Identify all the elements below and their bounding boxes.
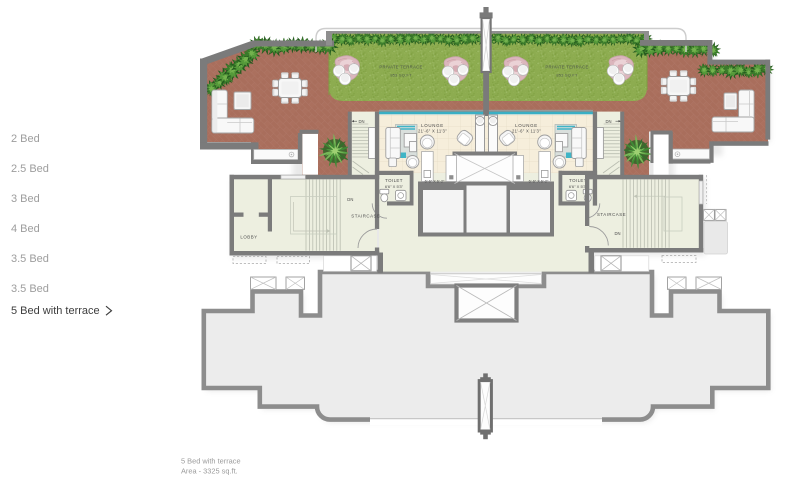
svg-text:2 Bed: 2 Bed [11,133,40,145]
svg-text:21'-6" X 11'3": 21'-6" X 11'3" [418,129,447,134]
svg-text:21'-6" X 11'3": 21'-6" X 11'3" [512,129,541,134]
svg-text:6'6" X 5'3": 6'6" X 5'3" [569,184,588,189]
svg-text:LOUNGE: LOUNGE [515,123,538,128]
svg-text:6'6" X 5'3": 6'6" X 5'3" [385,184,404,189]
svg-text:853 SQ.FT: 853 SQ.FT [556,72,578,77]
svg-text:DN: DN [606,119,612,124]
svg-text:TOILET: TOILET [385,178,403,183]
svg-text:Area - 3325 sq.ft.: Area - 3325 sq.ft. [181,466,238,475]
svg-text:DN: DN [359,119,365,124]
svg-text:3.5 Bed: 3.5 Bed [11,283,49,295]
svg-text:6'-6" X 6'-2": 6'-6" X 6'-2" [529,179,549,183]
svg-text:STAIRCASE: STAIRCASE [351,213,380,218]
svg-text:LOUNGE: LOUNGE [421,123,444,128]
svg-text:TOILET: TOILET [569,178,587,183]
svg-text:5 Bed with terrace: 5 Bed with terrace [11,305,100,317]
svg-text:853 SQ.FT: 853 SQ.FT [390,72,412,77]
svg-text:DN: DN [615,231,621,236]
svg-text:STAIRCASE: STAIRCASE [597,212,626,217]
svg-text:6'-6" X 6'-2": 6'-6" X 6'-2" [425,179,445,183]
svg-text:4 Bed: 4 Bed [11,223,40,235]
svg-text:LOBBY: LOBBY [240,235,257,240]
svg-text:5 Bed with terrace: 5 Bed with terrace [181,457,241,466]
svg-text:3 Bed: 3 Bed [11,193,40,205]
svg-text:DN: DN [347,197,353,202]
svg-text:2.5 Bed: 2.5 Bed [11,163,49,175]
svg-text:3.5 Bed: 3.5 Bed [11,253,49,265]
svg-text:PRIVATE TERRACE: PRIVATE TERRACE [379,65,422,70]
svg-text:PRIVATE TERRACE: PRIVATE TERRACE [545,65,588,70]
